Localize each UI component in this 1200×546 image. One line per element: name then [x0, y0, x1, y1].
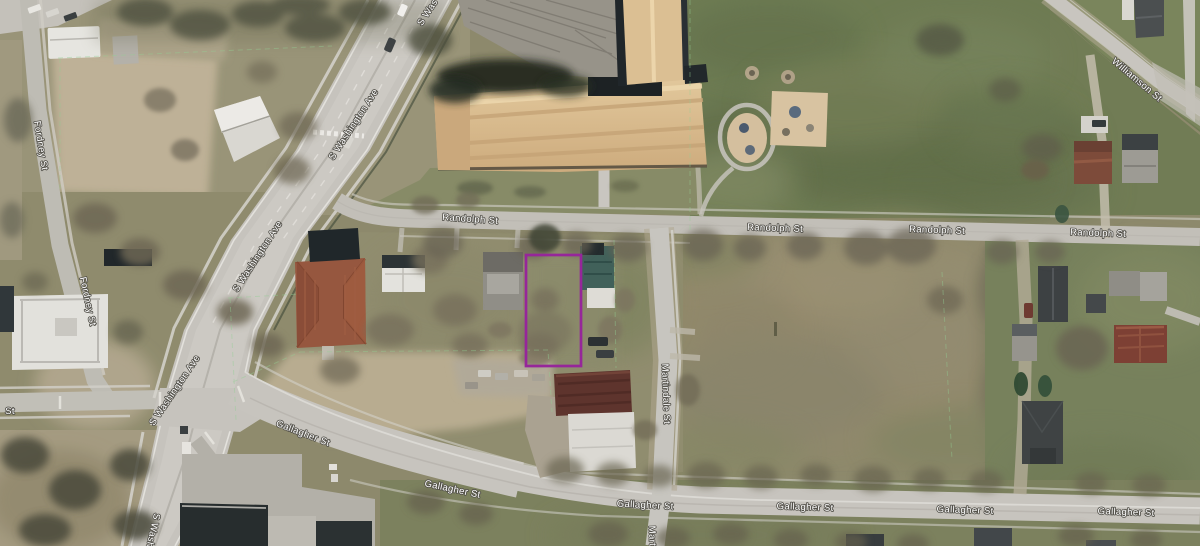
svg-text:Gallagher St: Gallagher St: [776, 501, 833, 514]
svg-text:Randolph St: Randolph St: [1070, 227, 1126, 240]
svg-text:Gallagher St: Gallagher St: [1097, 506, 1154, 519]
svg-text:Martindale St: Martindale St: [659, 364, 672, 425]
svg-text:Gallagher St: Gallagher St: [936, 504, 993, 517]
svg-text:Randolph St: Randolph St: [747, 222, 803, 235]
svg-text:Randolph St: Randolph St: [909, 224, 965, 237]
svg-text:St: St: [5, 406, 15, 417]
svg-text:Martindale St: Martindale St: [646, 526, 659, 546]
